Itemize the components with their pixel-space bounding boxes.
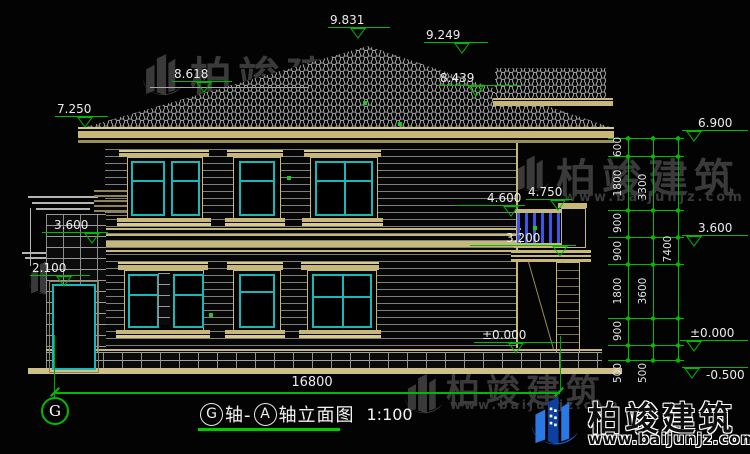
- dimension-value: 7400: [662, 229, 674, 269]
- elevation-triangle-icon: [56, 276, 72, 287]
- elevation-marker-left-eave: 7.250: [55, 102, 108, 128]
- dimension-chain-line: [628, 136, 629, 362]
- dimension-value: 600: [612, 127, 624, 167]
- elevation-marker-ground: ±0.000: [474, 328, 556, 354]
- window-sash: [173, 274, 204, 328]
- elevation-marker-secondary-eave: 8.439: [438, 71, 520, 97]
- dimension-value: 900: [612, 311, 624, 351]
- elevation-marker-balcony-slab: 3.200: [470, 231, 576, 257]
- elevation-value: ±0.000: [680, 326, 748, 340]
- title-scale: 1:100: [367, 405, 413, 424]
- window-head-trim: [304, 150, 381, 157]
- window-transom-bar: [133, 180, 163, 182]
- dimension-value: 1800: [612, 271, 624, 311]
- dimension-chain-line: [678, 136, 679, 362]
- axis-line-left: [54, 335, 55, 397]
- elevation-value: 3.200: [470, 231, 576, 245]
- porch-pilaster-capital: [25, 257, 47, 259]
- elevation-marker-left-ridge: 8.618: [172, 67, 232, 93]
- elevation-triangle-icon: [686, 341, 702, 352]
- title-underline: [198, 428, 340, 431]
- window-sash: [239, 161, 275, 216]
- elevation-marker-porch-door: 2.100: [30, 261, 90, 287]
- title-segment: 轴立面图: [279, 401, 355, 427]
- window-transom-bar: [130, 294, 157, 296]
- elevation-marker-balcony-rail: 4.600: [455, 191, 525, 217]
- elevation-marker-porch-roof: 3.600: [42, 218, 108, 244]
- porch-cornice-step: [32, 202, 94, 204]
- secondary-roof-cornice: [493, 98, 613, 106]
- window-2f-2: [233, 157, 281, 220]
- title-axis-start-bubble: G: [200, 403, 223, 426]
- window-mullion-bar: [342, 276, 344, 326]
- window-2f-3: [310, 157, 378, 220]
- window-transom-bar: [241, 291, 273, 293]
- dimension-chain-line: [653, 136, 654, 362]
- elevation-value: 8.439: [438, 71, 520, 85]
- snap-point-dot: [398, 122, 402, 126]
- drawing-title: G 轴- A 轴立面图 1:100: [198, 401, 413, 427]
- elevation-value: 8.618: [172, 67, 232, 81]
- window-1f-3: [307, 270, 377, 332]
- title-segment: 轴-: [225, 401, 252, 427]
- floor-belt-course: [101, 228, 521, 252]
- window-sash: [128, 274, 159, 328]
- elevation-value: 6.900: [682, 116, 748, 130]
- window-head-trim: [119, 150, 209, 157]
- window-sash: [171, 161, 200, 216]
- elevation-triangle-icon: [454, 43, 470, 54]
- window-head-trim: [118, 262, 208, 270]
- elevation-triangle-icon: [686, 236, 702, 247]
- elevation-marker-secondary-ridge: 9.249: [424, 28, 488, 54]
- title-axis-end-bubble: A: [254, 403, 277, 426]
- window-2f-1: [127, 157, 203, 220]
- axis-bubble-g: G: [41, 397, 69, 425]
- elevation-value: 3.600: [682, 221, 748, 235]
- window-head-trim: [227, 262, 283, 270]
- elevation-marker-right-mid: 3.600: [682, 221, 748, 247]
- snap-point-dot: [209, 313, 213, 317]
- window-sash: [131, 161, 165, 216]
- window-transom-bar: [175, 294, 202, 296]
- window-sash: [315, 161, 373, 216]
- window-sill: [302, 218, 383, 226]
- elevation-triangle-icon: [350, 28, 366, 39]
- dimension-value: 900: [612, 231, 624, 271]
- dimension-value: 3600: [637, 271, 649, 311]
- elevation-value: 4.600: [455, 191, 525, 205]
- window-sash: [312, 274, 372, 328]
- elevation-marker-balcony-post: 4.750: [526, 185, 572, 211]
- elevation-value: ±0.000: [474, 328, 556, 342]
- window-head-trim: [301, 262, 379, 270]
- baijun-logo-icon: [528, 388, 582, 452]
- elevation-value: 9.831: [328, 13, 390, 27]
- snap-point-dot: [287, 176, 291, 180]
- window-sill: [299, 330, 381, 338]
- elevation-marker-main-ridge: 9.831: [328, 13, 390, 39]
- overall-dimension-line: [55, 392, 560, 394]
- window-sash: [239, 274, 275, 328]
- stone-base-strip: [46, 352, 602, 368]
- window-head-trim: [227, 150, 283, 157]
- elevation-triangle-icon: [77, 117, 93, 128]
- elevation-marker-right-ground: ±0.000: [680, 326, 748, 352]
- dimension-value: 500: [637, 353, 649, 393]
- axis-bubble-label: G: [49, 402, 61, 420]
- window-transom-bar: [241, 180, 273, 182]
- elevation-triangle-icon: [196, 82, 212, 93]
- elevation-triangle-icon: [552, 246, 568, 257]
- window-sill: [225, 218, 285, 226]
- elevation-value: 3.600: [42, 218, 108, 232]
- dimension-value: 3300: [637, 167, 649, 207]
- elevation-triangle-icon: [686, 131, 702, 142]
- elevation-value: 9.249: [424, 28, 488, 42]
- elevation-value: -0.500: [700, 368, 745, 382]
- window-sill: [116, 330, 210, 338]
- snap-point-dot: [533, 226, 537, 230]
- watermark-site: www.baijunjz.com: [564, 190, 745, 205]
- elevation-drawing-canvas: 柏竣建筑 www.baijunjz.com 柏竣建筑 www.baijunjz.…: [0, 0, 750, 454]
- elevation-triangle-icon: [550, 200, 566, 211]
- window-1f-2: [233, 270, 281, 332]
- window-sill: [225, 330, 285, 338]
- dimension-value: 500: [612, 353, 624, 393]
- elevation-marker-right-foundation: -0.500: [682, 367, 748, 382]
- elevation-value: 7.250: [55, 102, 108, 116]
- elevation-marker-right-top: 6.900: [682, 116, 748, 142]
- overall-width-value: 16800: [262, 375, 362, 390]
- elevation-triangle-icon: [84, 233, 100, 244]
- stone-mullion: [158, 273, 170, 325]
- dimension-value: 1800: [612, 163, 624, 203]
- main-eave-cornice: [78, 127, 614, 143]
- ground-line: [28, 368, 622, 374]
- window-sill: [117, 218, 211, 226]
- porch-door: [52, 284, 96, 370]
- window-transom-bar: [173, 180, 198, 182]
- snap-point-dot: [363, 101, 367, 105]
- elevation-value: 2.100: [30, 261, 90, 275]
- window-mullion-bar: [344, 163, 346, 214]
- porch-cornice-step: [28, 196, 98, 198]
- elevation-triangle-icon: [503, 206, 519, 217]
- window-1f-1: [124, 270, 204, 332]
- porch-cornice-step: [36, 208, 90, 210]
- porch-pilaster-capital: [22, 252, 48, 254]
- elevation-triangle-icon: [508, 343, 524, 354]
- elevation-triangle-icon: [468, 86, 484, 97]
- elevation-value: 4.750: [526, 185, 572, 199]
- elevation-triangle-icon: [684, 368, 700, 379]
- axis-line-right: [560, 336, 561, 392]
- logo-site: www.baijunjz.com: [588, 430, 750, 448]
